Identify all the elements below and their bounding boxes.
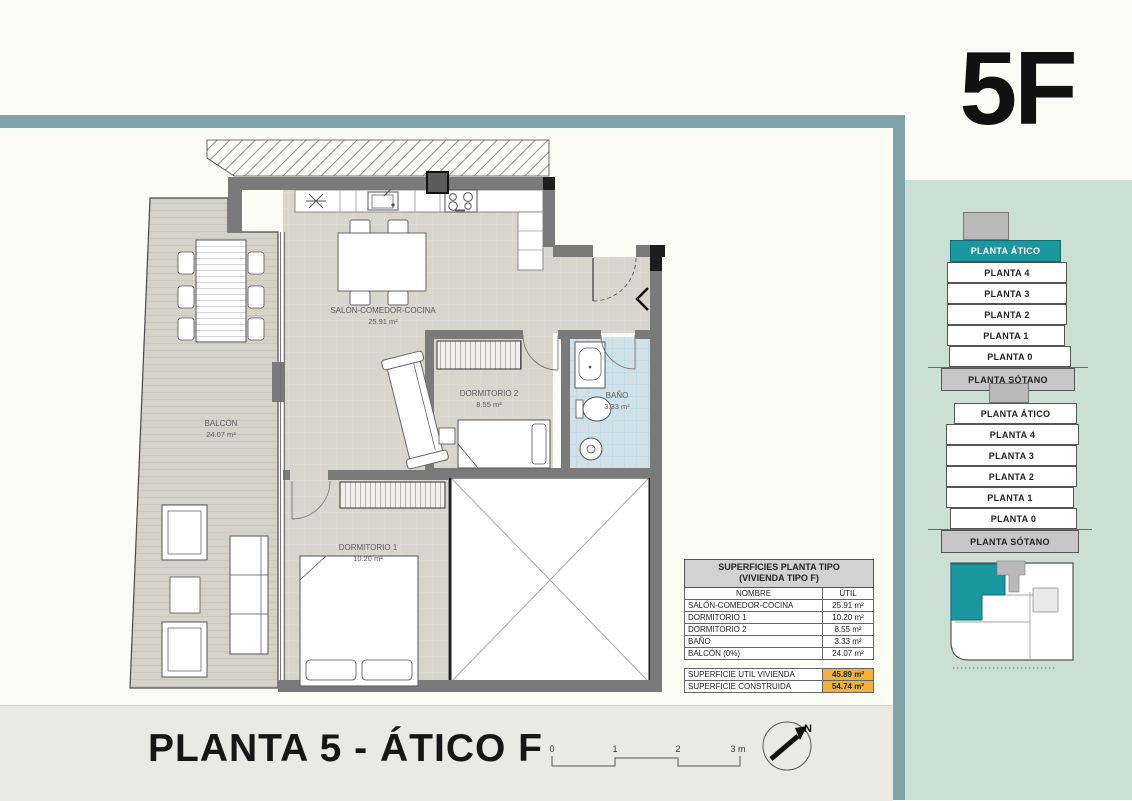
stair-core (450, 477, 650, 683)
total-construida-value: 54.74 m² (822, 681, 873, 692)
north-label: N (804, 723, 812, 735)
label-bano: BAÑO (606, 391, 629, 400)
stack1-floor-planta-2[interactable]: PLANTA 2 (947, 304, 1067, 325)
hatched-neighbour-band (207, 140, 549, 176)
table-row: SALÓN-COMEDOR-COCINA 25.91 m² (684, 600, 874, 612)
svg-text:1: 1 (612, 744, 617, 754)
total-util-row: SUPERFICIE UTIL VIVIENDA 45.89 m² (684, 668, 874, 681)
label-bano-area: 3.33 m² (604, 402, 630, 411)
stack1-floor-planta-3[interactable]: PLANTA 3 (947, 283, 1067, 304)
roof-box (963, 212, 1009, 240)
stack2-floor-planta-2[interactable]: PLANTA 2 (946, 466, 1077, 487)
stack1-floor-planta-1[interactable]: PLANTA 1 (947, 325, 1065, 346)
label-salon: SALÓN-COMEDOR-COCINA (330, 306, 436, 315)
surfaces-table-title: SUPERFICIES PLANTA TIPO (685, 562, 873, 573)
stack2-floor-planta-atico[interactable]: PLANTA ÁTICO (954, 403, 1077, 424)
frame-top-bar (0, 115, 905, 128)
surfaces-table-header: NOMBRE ÚTIL (684, 588, 874, 600)
frame-right-bar (893, 115, 905, 800)
hall-floor (553, 257, 650, 333)
total-construida-row: SUPERFICIE CONSTRUIDA 54.74 m² (684, 680, 874, 693)
stack1-floor-planta-0[interactable]: PLANTA 0 (949, 346, 1071, 367)
label-dormitorio1-area: 10.20 m² (353, 554, 383, 563)
svg-text:0: 0 (549, 744, 554, 754)
table-row: BALCÓN (0%) 24.07 m² (684, 648, 874, 660)
washbasin-icon (575, 342, 605, 388)
stack1-floor-planta-atico[interactable]: PLANTA ÁTICO (950, 240, 1061, 262)
scale-and-compass: 0 1 2 3 m N (0, 705, 893, 800)
table-row: DORMITORIO 2 8.55 m² (684, 624, 874, 636)
floor-stack-building-2: PLANTA ÁTICO PLANTA 4 PLANTA 3 PLANTA 2 … (941, 383, 1079, 553)
svg-text:3 m: 3 m (730, 744, 745, 754)
table-row: BAÑO 3.33 m² (684, 636, 874, 648)
stack2-floor-planta-1[interactable]: PLANTA 1 (946, 487, 1074, 508)
label-dormitorio2-area: 8.55 m² (476, 400, 502, 409)
label-dormitorio1: DORMITORIO 1 (339, 543, 398, 552)
wardrobe-icon (437, 341, 521, 369)
stack2-floor-planta-3[interactable]: PLANTA 3 (946, 445, 1077, 466)
sink-icon (368, 189, 398, 210)
floor-stack-building-1: PLANTA ÁTICO PLANTA 4 PLANTA 3 PLANTA 2 … (941, 212, 1075, 391)
stack2-floor-planta-0[interactable]: PLANTA 0 (950, 508, 1077, 529)
label-salon-area: 25.91 m² (368, 317, 398, 326)
svg-text:2: 2 (675, 744, 680, 754)
unit-code: 5F (902, 30, 1132, 149)
north-arrow: N (763, 722, 812, 770)
stove-icon (445, 190, 477, 212)
washer-icon (580, 438, 602, 460)
label-balcon-area: 24.07 m² (206, 430, 236, 439)
roof-box (989, 383, 1029, 403)
key-plan (935, 550, 1090, 675)
kitchen-column (427, 172, 448, 193)
total-util-value: 45.89 m² (822, 669, 873, 680)
col-util: ÚTIL (822, 588, 873, 599)
table-row: DORMITORIO 1 10.20 m² (684, 612, 874, 624)
stack2-floor-planta-4[interactable]: PLANTA 4 (946, 424, 1079, 445)
stack1-floor-planta-4[interactable]: PLANTA 4 (947, 262, 1067, 283)
ground-line (928, 529, 1092, 530)
surfaces-table-subtitle: (VIVIENDA TIPO F) (685, 573, 873, 584)
label-dormitorio2: DORMITORIO 2 (460, 389, 519, 398)
scale-bar: 0 1 2 3 m (549, 744, 745, 766)
col-nombre: NOMBRE (685, 588, 822, 599)
label-balcon: BALCÓN (205, 419, 238, 428)
wardrobe1-icon (340, 482, 445, 508)
surfaces-table: SUPERFICIES PLANTA TIPO (VIVIENDA TIPO F… (684, 559, 874, 693)
ground-line (928, 367, 1088, 368)
